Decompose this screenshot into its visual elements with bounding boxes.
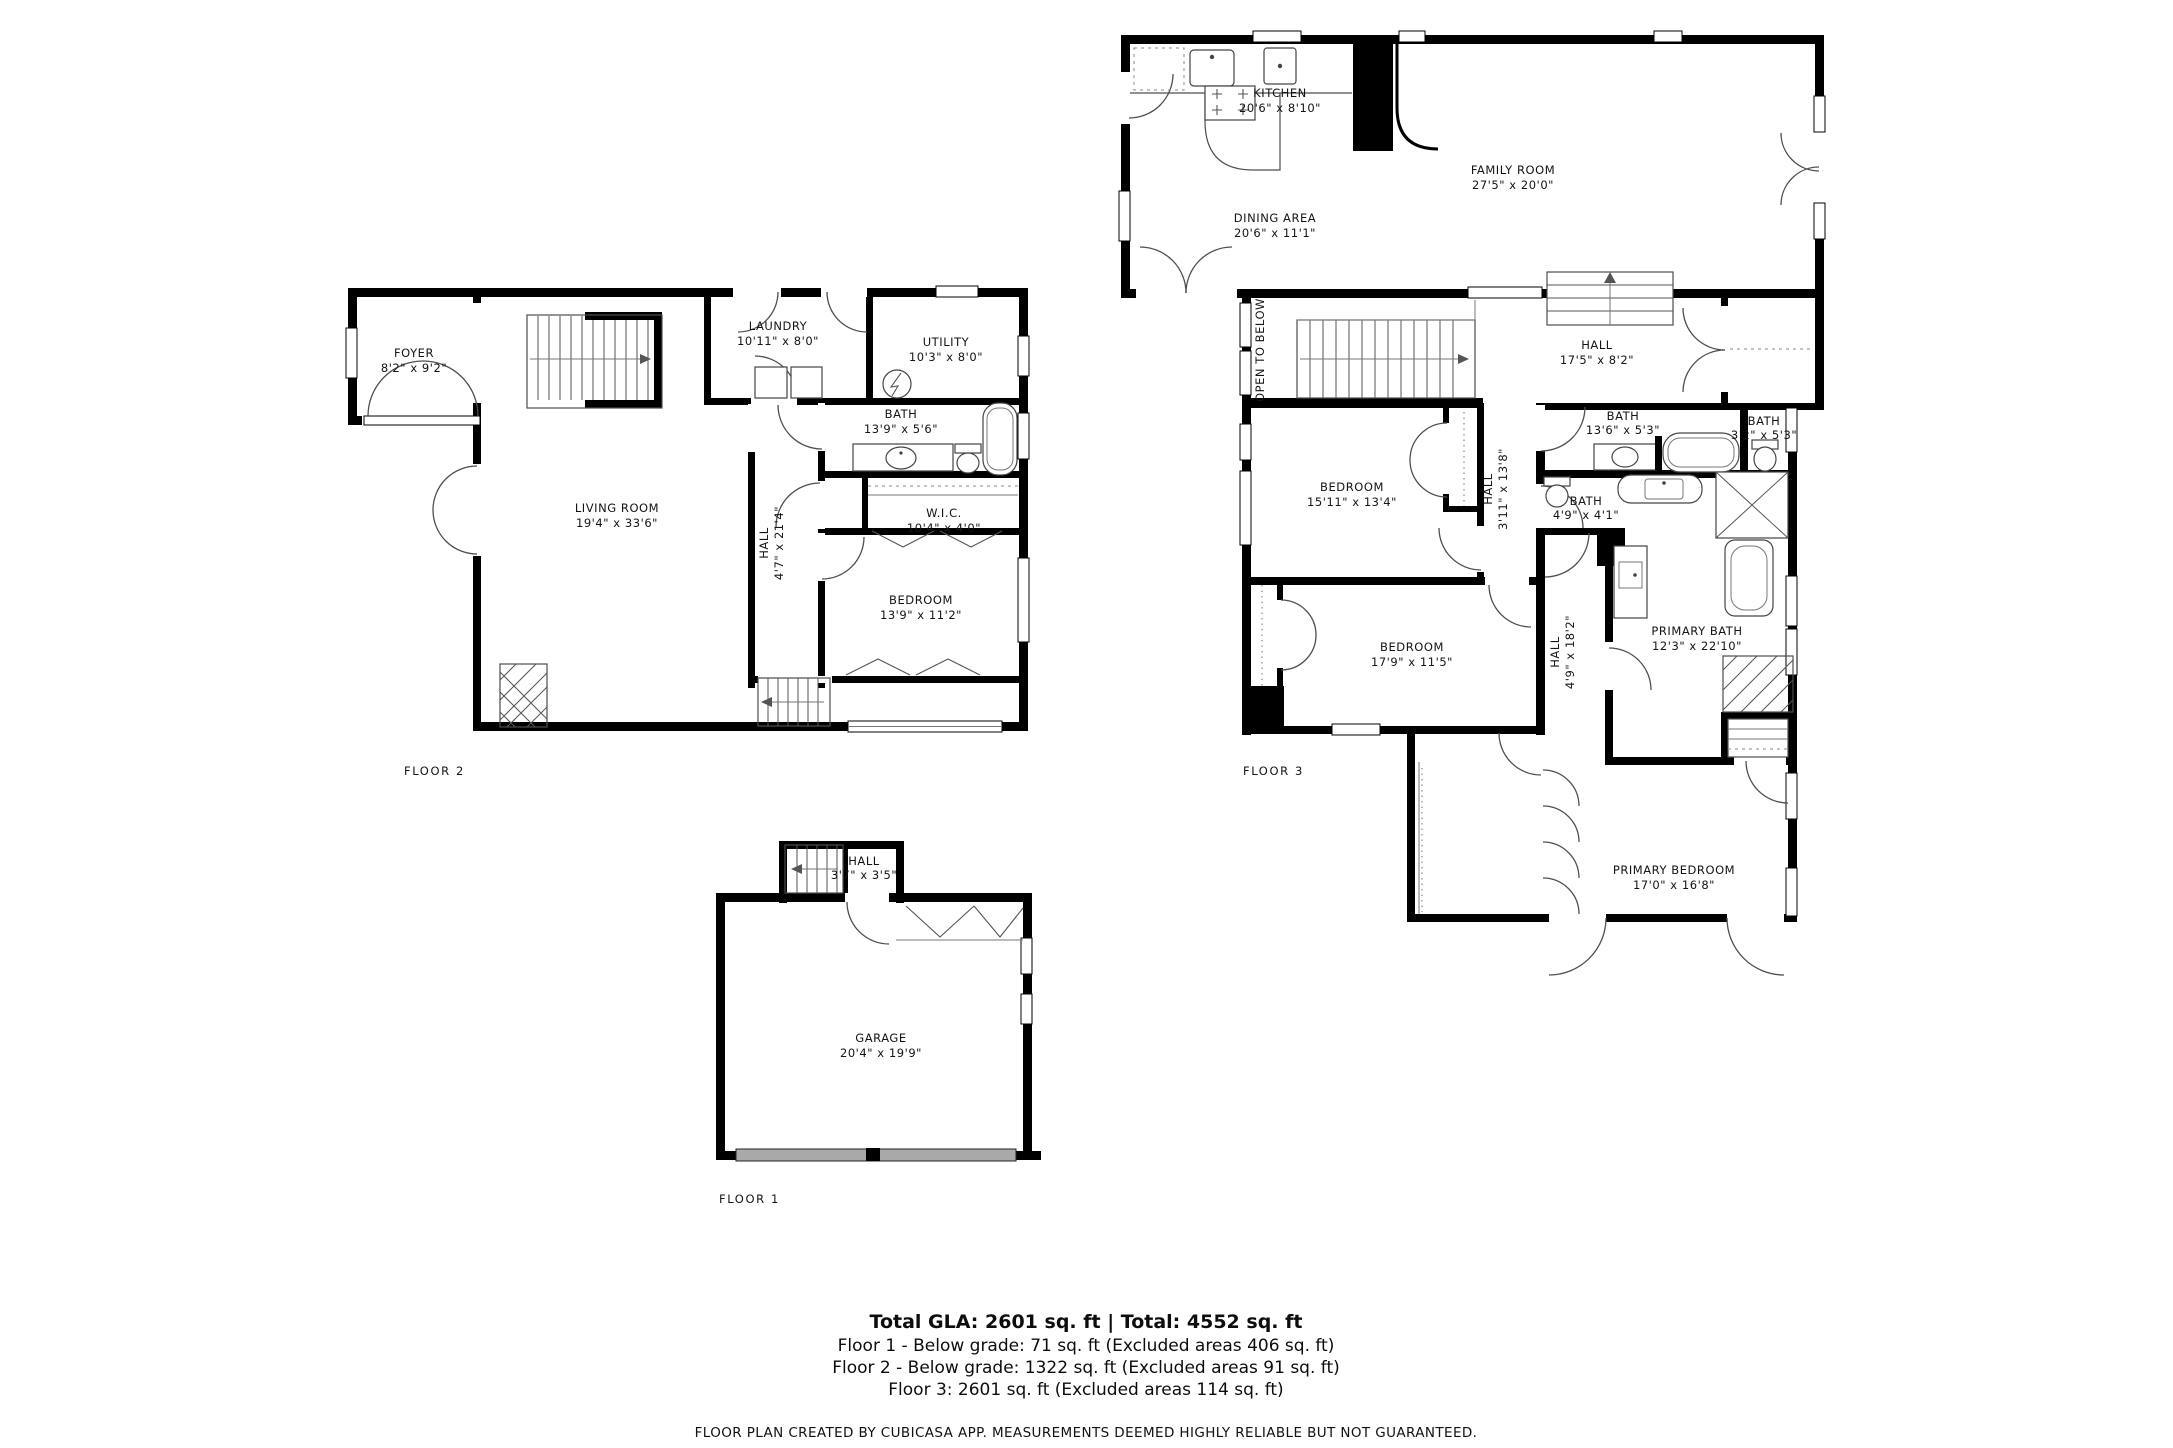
bath-f2-label: BATH [885,407,918,421]
floor3-area-line: Floor 3: 2601 sq. ft (Excluded areas 114… [888,1380,1283,1400]
hall-lower-dims: 4'9" x 18'2" [1563,615,1577,689]
laundry-label: LAUNDRY [749,319,808,333]
vanity-sink-icon [853,444,953,471]
bedroom-f2-dims: 13'9" x 11'2" [880,608,962,622]
floor-3-labels: KITCHEN 20'6" x 8'10" FAMILY ROOM 27'5" … [1234,86,1797,892]
floor-1-walls [716,841,1041,1161]
floor-1-title: FLOOR 1 [719,1192,780,1206]
bedroom-lower-dims: 17'9" x 11'5" [1371,655,1453,669]
floor-2-title: FLOOR 2 [404,764,465,778]
wic-dims: 10'4" x 4'0" [907,521,981,535]
floor2-area-line: Floor 2 - Below grade: 1322 sq. ft (Excl… [832,1358,1340,1378]
floor-plan-page: FOYER 8'2" x 9'2" LAUNDRY 10'11" x 8'0" … [0,0,2173,1448]
primary-bedroom-label: PRIMARY BEDROOM [1613,863,1735,877]
family-room-dims: 27'5" x 20'0" [1472,178,1554,192]
bath-main-fixtures [1594,433,1739,472]
primary-bath-fixtures [1614,472,1793,712]
family-room-label: FAMILY ROOM [1471,163,1555,177]
bath-small-dims: 3'2" x 5'3" [1731,428,1797,442]
bedroom-upper-dims: 15'11" x 13'4" [1307,495,1397,509]
total-gla-line: Total GLA: 2601 sq. ft | Total: 4552 sq.… [870,1311,1303,1333]
bath-f2-dims: 13'9" x 5'6" [864,422,938,436]
floor-1-doors [847,902,889,944]
living-room-dims: 19'4" x 33'6" [576,516,658,530]
primary-bedroom-dims: 17'0" x 16'8" [1633,878,1715,892]
bath-powder-dims: 4'9" x 4'1" [1553,508,1619,522]
foyer-dims: 8'2" x 9'2" [381,361,447,375]
bath-powder-toilet-icon [1544,477,1570,507]
bedroom-closet-hangers [846,659,980,675]
disclaimer-line: FLOOR PLAN CREATED BY CUBICASA APP. MEAS… [695,1425,1478,1441]
hall-f1-label: HALL [848,854,880,868]
living-room-label: LIVING ROOM [575,501,659,515]
foyer-label: FOYER [394,346,434,360]
primary-bath-dims: 12'3" x 22'10" [1652,639,1742,653]
dryer-icon [791,367,822,398]
dining-area-dims: 20'6" x 11'1" [1234,226,1316,240]
staircase-main [1297,300,1475,398]
laundry-dims: 10'11" x 8'0" [737,334,819,348]
utility-dims: 10'3" x 8'0" [909,350,983,364]
staircase-wide [1547,272,1673,325]
kitchen-sink-icon [1190,50,1234,86]
floor-plan-canvas: FOYER 8'2" x 9'2" LAUNDRY 10'11" x 8'0" … [0,0,2173,1448]
summary-text: Total GLA: 2601 sq. ft | Total: 4552 sq.… [695,1311,1478,1441]
utility-label: UTILITY [923,335,970,349]
primary-bath-label: PRIMARY BATH [1651,624,1742,638]
bedroom-upper-label: BEDROOM [1320,480,1384,494]
floor-2-plan: FOYER 8'2" x 9'2" LAUNDRY 10'11" x 8'0" … [346,286,1029,778]
floor-3-plan: KITCHEN 20'6" x 8'10" FAMILY ROOM 27'5" … [1119,31,1825,975]
bath-small-toilet-icon [1752,440,1778,471]
island-sink-icon [1264,48,1296,84]
curved-wall [1397,44,1438,149]
floor-1-plan: HALL 3'7" x 3'5" GARAGE 20'4" x 19'9" FL… [716,841,1041,1206]
dining-area-label: DINING AREA [1234,211,1316,225]
hall-upper-dims: 17'5" x 8'2" [1560,353,1634,367]
hall-upper-label: HALL [1581,338,1613,352]
hall-mid-dims: 3'11" x 13'8" [1496,448,1510,530]
staircase-upper [527,315,662,408]
hall-lower-label: HALL [1548,636,1562,668]
hall-f2-dims: 4'7" x 21'4" [772,506,786,580]
kitchen-label: KITCHEN [1253,86,1307,100]
washer-icon [755,367,787,398]
bedroom-lower-label: BEDROOM [1380,640,1444,654]
open-to-below-label: OPEN TO BELOW [1253,298,1267,402]
hatch-area [1723,656,1793,712]
hall-f2-label: HALL [757,527,771,559]
hall-f1-dims: 3'7" x 3'5" [831,868,897,882]
hall-mid-label: HALL [1481,473,1495,505]
bath-small-label: BATH [1748,414,1781,428]
bath-main-dims: 13'6" x 5'3" [1586,423,1660,437]
primary-closet [1419,762,1422,914]
bath-powder-label: BATH [1570,494,1603,508]
kitchen-dims: 20'6" x 8'10" [1239,101,1321,115]
linen-closet [1728,719,1788,757]
floor1-area-line: Floor 1 - Below grade: 71 sq. ft (Exclud… [838,1336,1335,1356]
water-heater-icon [883,370,911,398]
wic-label: W.I.C. [926,506,962,520]
garage-dims: 20'4" x 19'9" [840,1046,922,1060]
garage-label: GARAGE [855,1031,906,1045]
toilet-icon [955,444,981,473]
garage-storage-hangers [896,906,1023,940]
bathtub-icon [1725,540,1773,616]
deck-hatch [500,664,547,727]
bath-main-label: BATH [1607,409,1640,423]
bathtub-icon [983,403,1017,475]
floor-3-title: FLOOR 3 [1243,764,1304,778]
bedroom-f2-label: BEDROOM [889,593,953,607]
